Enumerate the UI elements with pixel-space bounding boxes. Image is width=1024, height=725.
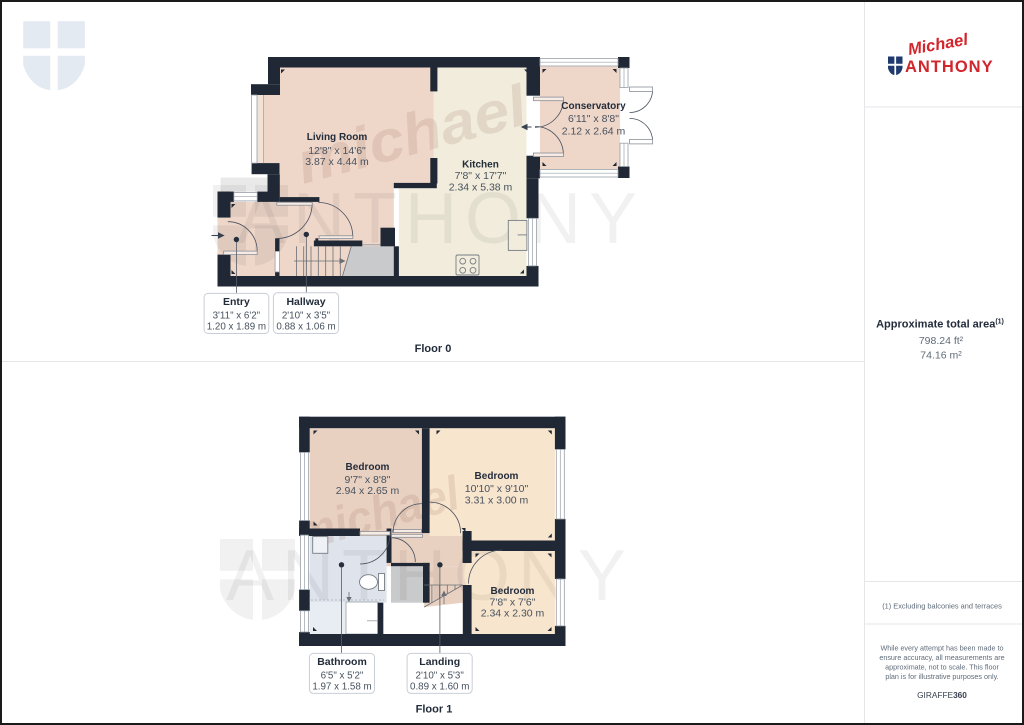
svg-text:ensure accuracy, all measureme: ensure accuracy, all measurements are (879, 653, 1004, 662)
svg-text:Kitchen: Kitchen (462, 160, 499, 171)
svg-text:2.94 x 2.65 m: 2.94 x 2.65 m (336, 485, 400, 497)
svg-text:2'10" x 5'3": 2'10" x 5'3" (416, 671, 465, 682)
svg-text:Landing: Landing (419, 656, 460, 668)
svg-text:3.31 x 3.00 m: 3.31 x 3.00 m (465, 495, 529, 507)
svg-text:approximate, not to scale. Thi: approximate, not to scale. This floor (885, 663, 999, 672)
svg-text:2.34 x 5.38 m: 2.34 x 5.38 m (449, 182, 513, 194)
svg-text:GIRAFFE360: GIRAFFE360 (917, 690, 967, 700)
svg-text:0.89 x 1.60 m: 0.89 x 1.60 m (410, 682, 469, 693)
svg-text:plan is for illustrative purpo: plan is for illustrative purposes only. (885, 672, 998, 681)
svg-text:1.97 x 1.58 m: 1.97 x 1.58 m (312, 682, 371, 693)
svg-text:3'11" x 6'2": 3'11" x 6'2" (213, 311, 261, 322)
svg-text:Approximate total area(1): Approximate total area(1) (876, 319, 1004, 331)
svg-text:798.24 ft²: 798.24 ft² (919, 335, 964, 347)
svg-text:(1) Excluding balconies and te: (1) Excluding balconies and terraces (882, 601, 1002, 610)
svg-text:6'11" x 8'8": 6'11" x 8'8" (568, 113, 619, 125)
svg-text:While every attempt has been m: While every attempt has been made to (880, 643, 1003, 652)
svg-text:3.87 x 4.44 m: 3.87 x 4.44 m (305, 156, 369, 168)
svg-text:0.88 x 1.06 m: 0.88 x 1.06 m (276, 321, 335, 332)
svg-text:10'10" x 9'10": 10'10" x 9'10" (465, 483, 529, 495)
svg-text:Floor 0: Floor 0 (415, 343, 452, 355)
svg-text:Floor 1: Floor 1 (416, 704, 453, 716)
svg-text:2.12 x 2.64 m: 2.12 x 2.64 m (562, 126, 626, 138)
svg-text:Bedroom: Bedroom (491, 586, 535, 597)
svg-text:Conservatory: Conservatory (561, 101, 626, 112)
svg-text:6'5" x 5'2": 6'5" x 5'2" (321, 671, 364, 682)
svg-text:1.20 x 1.89 m: 1.20 x 1.89 m (207, 321, 266, 332)
svg-text:Bathroom: Bathroom (317, 656, 367, 668)
svg-text:ANTHONY: ANTHONY (237, 179, 645, 259)
svg-text:Hallway: Hallway (286, 296, 325, 308)
svg-text:74.16 m²: 74.16 m² (920, 350, 962, 362)
svg-text:2'10" x 3'5": 2'10" x 3'5" (282, 311, 331, 322)
svg-text:2.34 x 2.30 m: 2.34 x 2.30 m (481, 608, 545, 620)
svg-text:Bedroom: Bedroom (346, 462, 390, 473)
svg-text:Living Room: Living Room (307, 132, 368, 143)
svg-text:Entry: Entry (223, 296, 250, 308)
svg-text:7'8" x 17'7": 7'8" x 17'7" (455, 170, 507, 182)
svg-text:Bedroom: Bedroom (475, 471, 519, 482)
svg-text:ANTHONY: ANTHONY (905, 58, 994, 76)
